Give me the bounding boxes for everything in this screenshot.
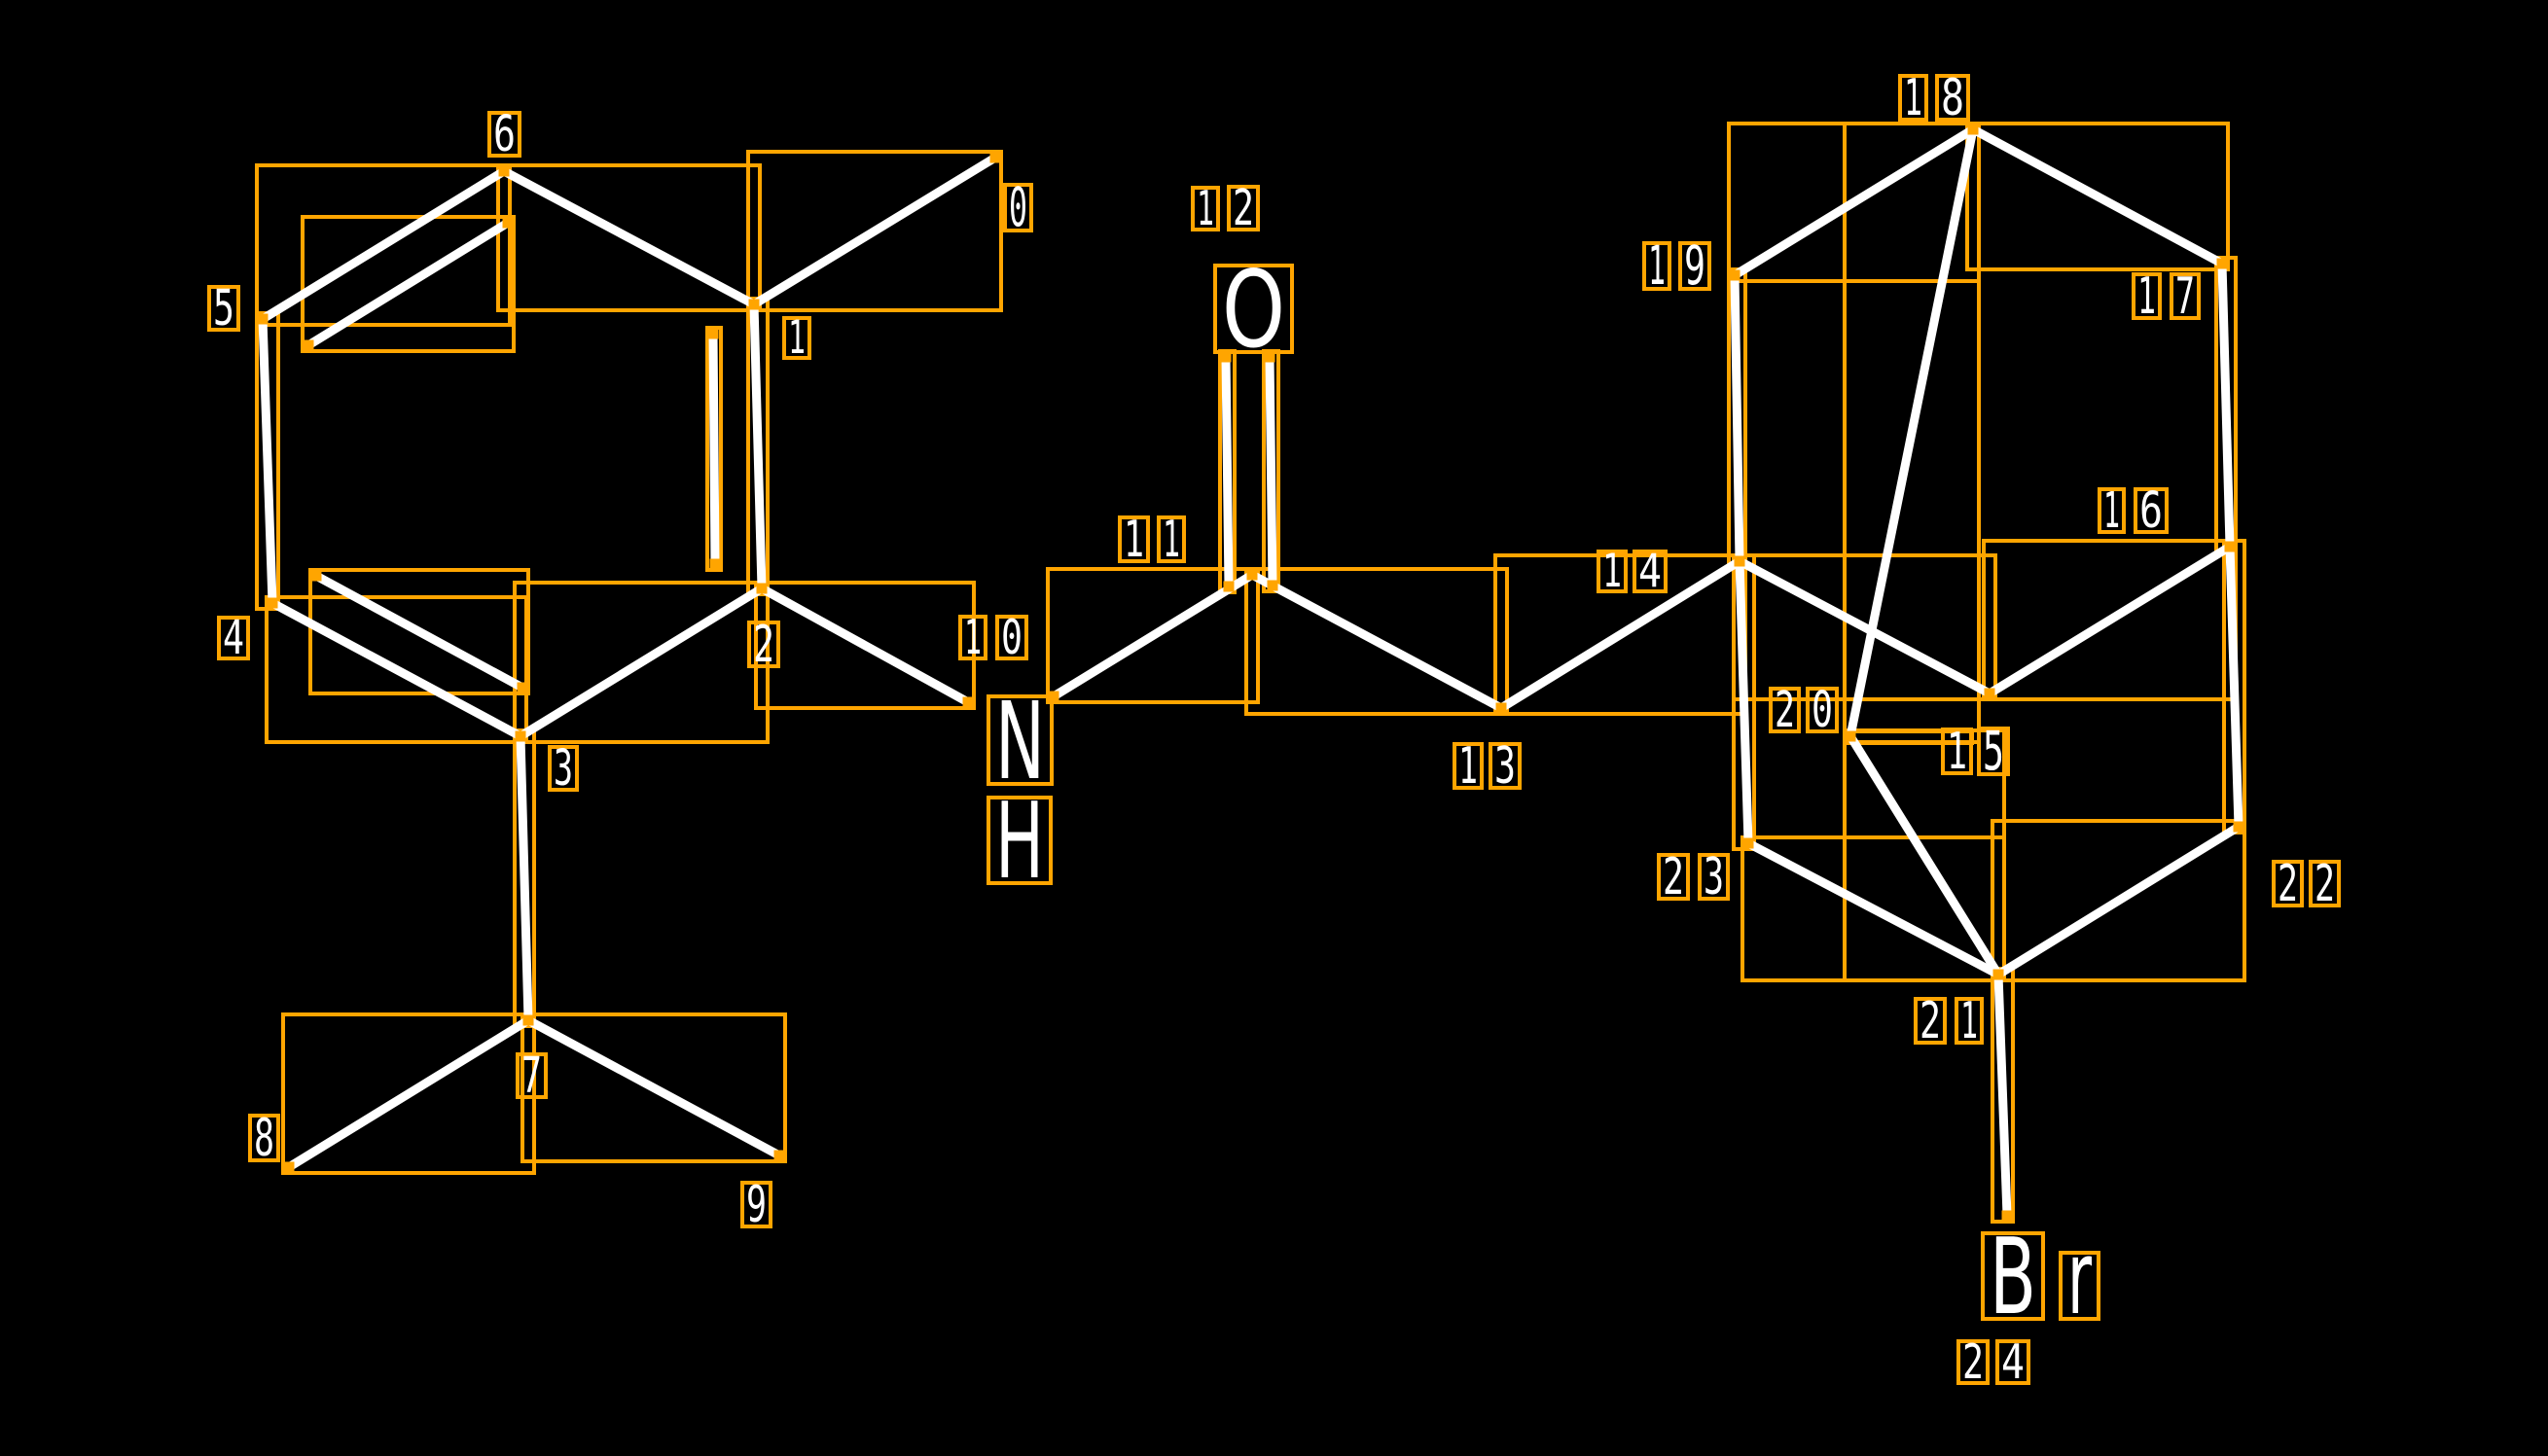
index-digit: 1 <box>1602 545 1622 598</box>
index-digit: 1 <box>1904 69 1922 127</box>
index-digit: 1 <box>1197 181 1214 236</box>
atom-symbol-g-O-1249: O <box>1215 248 1292 372</box>
atom-index-label-3: 3 <box>550 740 577 798</box>
bond-endpoint-dot <box>990 153 1001 163</box>
bond-endpoint-dot <box>1993 970 2004 980</box>
bond-endpoint-dot <box>2225 542 2236 552</box>
index-digit: 1 <box>2103 482 2120 540</box>
bond-endpoint-dot <box>516 731 526 742</box>
index-digit: 6 <box>493 106 516 163</box>
atom-index-label-0: 0 <box>1005 176 1031 238</box>
atom-symbol-glyph: O <box>1222 248 1285 372</box>
bond-endpoint-dot <box>523 1015 534 1026</box>
bond-endpoint-dot <box>311 571 322 582</box>
index-digit: 6 <box>2139 482 2163 540</box>
atom-index-label-4: 4 <box>219 611 248 665</box>
bond-endpoint-dot <box>1224 582 1235 592</box>
index-digit: 1 <box>1458 737 1478 796</box>
index-digit: 1 <box>1960 992 1978 1050</box>
index-digit: 1 <box>1947 723 1967 781</box>
bond-endpoint-dot <box>499 166 510 177</box>
index-digit: 2 <box>1663 848 1684 906</box>
atom-index-label-2: 2 <box>749 616 778 674</box>
bond-endpoint-dot <box>1730 270 1741 281</box>
atom-symbol-glyph: r <box>2067 1219 2092 1337</box>
bond-line-11-12-inner <box>1270 357 1273 586</box>
bond-endpoint-dot <box>284 1162 295 1173</box>
index-digit: 3 <box>554 740 573 798</box>
index-digit: 1 <box>964 610 982 665</box>
bond-endpoint-dot <box>2234 822 2244 833</box>
index-digit: 7 <box>521 1048 542 1105</box>
index-digit: 2 <box>2278 855 2298 913</box>
bond-endpoint-dot <box>708 329 719 339</box>
index-digit: 2 <box>1775 682 1795 739</box>
index-digit: 2 <box>753 616 774 674</box>
bond-endpoint-dot <box>757 584 768 594</box>
bond-endpoint-dot <box>258 314 269 325</box>
bond-endpoint-dot <box>1268 581 1278 591</box>
atom-index-label-5: 5 <box>209 280 238 337</box>
index-digit: 1 <box>788 311 806 365</box>
index-digit: 9 <box>746 1176 767 1234</box>
index-digit: 8 <box>1941 69 1964 127</box>
index-digit: 3 <box>1494 737 1516 796</box>
index-digit: 9 <box>1684 234 1705 297</box>
molecule-diagram: 0123456789101112131415161718192021222324… <box>0 0 2548 1456</box>
molecule-annotation-canvas: 0123456789101112131415161718192021222324… <box>0 0 2548 1456</box>
bond-endpoint-dot <box>503 218 514 229</box>
bond-endpoint-dot <box>1247 570 1258 581</box>
index-digit: 0 <box>1001 610 1023 665</box>
index-digit: 4 <box>223 611 244 665</box>
index-digit: 1 <box>1124 511 1144 569</box>
bond-endpoint-dot <box>1735 556 1745 567</box>
bond-line-14-19 <box>1735 275 1740 561</box>
atom-symbol-g-H-1016: H <box>988 781 1051 903</box>
bond-endpoint-dot <box>304 340 314 351</box>
bond-endpoint-dot <box>1846 731 1856 742</box>
index-digit: 8 <box>254 1109 274 1168</box>
bond-endpoint-dot <box>710 559 721 570</box>
bond-endpoint-dot <box>1968 124 1979 135</box>
index-digit: 4 <box>2001 1334 2025 1390</box>
atom-symbol-glyph: B <box>1990 1217 2036 1338</box>
atom-symbol-glyph: H <box>995 781 1044 903</box>
index-digit: 3 <box>1704 848 1724 906</box>
index-digit: 0 <box>1812 682 1833 739</box>
bond-endpoint-dot <box>1496 703 1507 714</box>
bond-endpoint-dot <box>518 683 528 693</box>
bond-endpoint-dot <box>774 1151 785 1161</box>
atom-symbol-g-B-2038: B <box>1983 1217 2043 1338</box>
index-digit: 1 <box>1163 511 1180 569</box>
index-digit: 2 <box>1233 180 1254 237</box>
bond-endpoint-dot <box>1985 689 1995 699</box>
bond-endpoint-dot <box>1743 838 1754 849</box>
bond-endpoint-dot <box>2217 259 2228 269</box>
index-digit: 1 <box>2137 267 2156 326</box>
index-digit: 4 <box>1638 545 1662 598</box>
atom-index-label-8: 8 <box>250 1109 278 1168</box>
index-digit: 1 <box>1648 234 1666 297</box>
index-digit: 2 <box>2315 855 2335 913</box>
bond-line-1-2-inner <box>713 334 715 564</box>
bond-endpoint-dot <box>268 598 278 609</box>
bond-endpoint-dot <box>963 697 974 708</box>
atom-index-label-9: 9 <box>742 1176 771 1234</box>
bond-line-11-12-inner <box>1226 357 1229 586</box>
index-digit: 0 <box>1009 176 1027 238</box>
atom-index-label-7: 7 <box>518 1048 546 1105</box>
index-digit: 2 <box>1920 992 1941 1050</box>
index-digit: 7 <box>2175 267 2195 326</box>
atom-index-label-6: 6 <box>489 106 520 163</box>
index-digit: 5 <box>1983 720 2004 782</box>
index-digit: 5 <box>213 280 234 337</box>
index-digit: 2 <box>1962 1334 1984 1390</box>
bond-endpoint-dot <box>749 300 760 310</box>
